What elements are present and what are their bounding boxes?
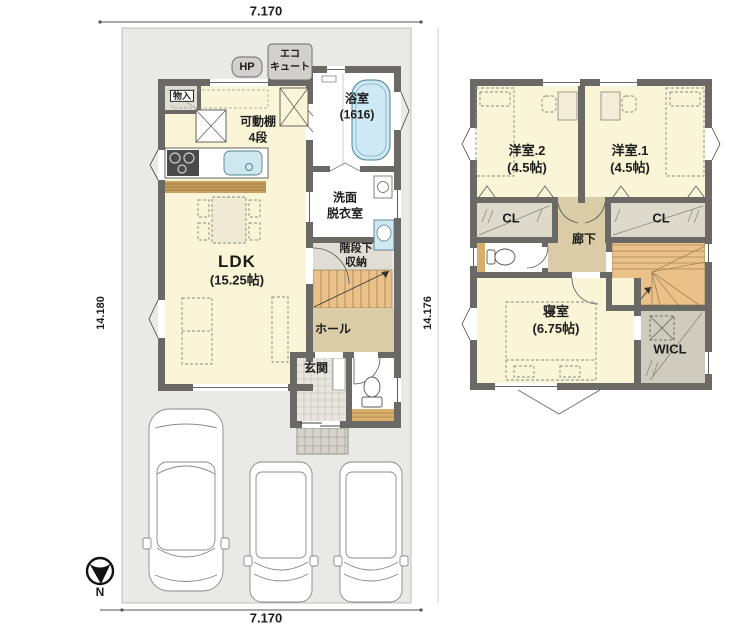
label-movable-shelf: 可動棚 4段 (240, 114, 276, 145)
label-ldk-name: LDK (218, 251, 256, 273)
label-under-stair-storage: 階段下 収納 (340, 242, 373, 271)
toilet-2f (487, 249, 515, 265)
label-storage: 物入 (170, 90, 194, 102)
dimension-bottom: 7.170 (250, 611, 283, 628)
label-room2: 洋室.2 (4.5帖) (507, 143, 547, 177)
label-hall: ホール (315, 322, 351, 338)
dimension-left: 14.180 (94, 296, 108, 330)
compass-north-label: N (96, 585, 105, 601)
label-entrance: 玄関 (304, 361, 328, 377)
car-2 (244, 462, 318, 602)
car-3 (334, 462, 408, 602)
label-wicl: WICL (653, 342, 686, 359)
label-ldk-size: (15.25帖) (210, 273, 264, 290)
dimension-top: 7.170 (250, 4, 283, 21)
label-eco-cute: エコ キュート (270, 48, 310, 74)
toilet-1f (362, 377, 382, 407)
label-corridor: 廊下 (572, 232, 596, 248)
label-closet-left: CL (502, 211, 519, 228)
label-room1: 洋室.1 (4.5帖) (610, 143, 650, 177)
label-washroom: 洗面 脱衣室 (327, 190, 363, 221)
label-closet-right: CL (652, 211, 669, 228)
label-bathroom: 浴室 (1616) (340, 91, 375, 122)
compass-icon (87, 558, 113, 584)
floorplan-screenshot: 7.170 7.170 14.180 14.176 N エコ キュート HP 物… (0, 0, 738, 631)
dimension-right: 14.176 (421, 296, 435, 330)
car-1 (143, 409, 229, 591)
label-bedroom: 寝室 (6.75帖) (533, 304, 580, 338)
label-hp: HP (239, 60, 254, 74)
